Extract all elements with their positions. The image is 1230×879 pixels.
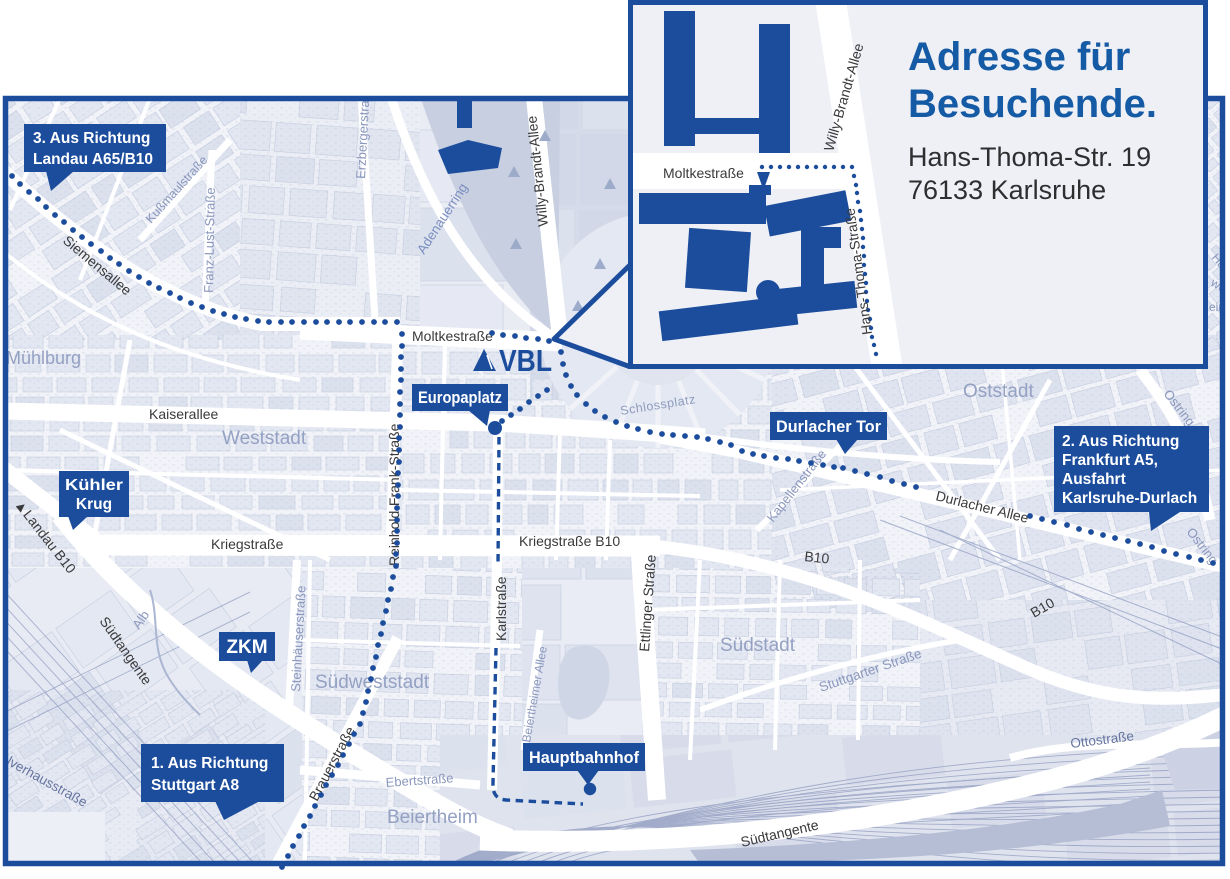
svg-text:Krug: Krug bbox=[76, 496, 112, 513]
svg-text:Besuchende.: Besuchende. bbox=[908, 82, 1157, 126]
svg-text:Kriegstraße: Kriegstraße bbox=[211, 536, 284, 552]
svg-text:VBL: VBL bbox=[499, 343, 552, 378]
svg-text:Moltkestraße: Moltkestraße bbox=[412, 328, 493, 344]
svg-text:Beiertheim: Beiertheim bbox=[387, 807, 478, 828]
svg-text:Südweststadt: Südweststadt bbox=[315, 672, 430, 693]
svg-text:Landau A65/B10: Landau A65/B10 bbox=[33, 151, 153, 168]
svg-text:Oststadt: Oststadt bbox=[963, 381, 1034, 402]
svg-text:Franz-Lust-Straße: Franz-Lust-Straße bbox=[201, 187, 218, 293]
svg-text:ZKM: ZKM bbox=[226, 637, 267, 658]
svg-text:Karlsruhe-Durlach: Karlsruhe-Durlach bbox=[1062, 490, 1197, 507]
svg-text:Moltkestraße: Moltkestraße bbox=[663, 165, 744, 181]
svg-text:Ausfahrt: Ausfahrt bbox=[1062, 471, 1126, 488]
svg-text:Stuttgart A8: Stuttgart A8 bbox=[151, 777, 239, 794]
svg-text:Adresse für: Adresse für bbox=[908, 35, 1130, 79]
svg-text:1. Aus Richtung: 1. Aus Richtung bbox=[151, 755, 268, 772]
svg-text:Mühlburg: Mühlburg bbox=[6, 348, 81, 368]
svg-text:Südstadt: Südstadt bbox=[720, 635, 796, 656]
svg-text:Hauptbahnhof: Hauptbahnhof bbox=[529, 749, 639, 767]
svg-text:Karlstraße: Karlstraße bbox=[493, 576, 509, 641]
svg-text:2. Aus Richtung: 2. Aus Richtung bbox=[1062, 433, 1179, 450]
svg-text:Durlacher Tor: Durlacher Tor bbox=[776, 418, 882, 436]
svg-text:Weststadt: Weststadt bbox=[222, 428, 307, 449]
svg-text:Hans-Thoma-Str. 19: Hans-Thoma-Str. 19 bbox=[908, 142, 1151, 172]
svg-text:3. Aus Richtung: 3. Aus Richtung bbox=[33, 130, 150, 147]
svg-text:Europaplatz: Europaplatz bbox=[418, 389, 502, 407]
svg-text:76133 Karlsruhe: 76133 Karlsruhe bbox=[908, 175, 1106, 205]
svg-text:Kühler: Kühler bbox=[65, 477, 123, 494]
svg-text:Kaiserallee: Kaiserallee bbox=[149, 406, 218, 422]
svg-text:Frankfurt A5,: Frankfurt A5, bbox=[1062, 452, 1158, 469]
svg-text:Kriegstraße B10: Kriegstraße B10 bbox=[519, 533, 620, 549]
svg-text:B10: B10 bbox=[804, 548, 831, 567]
